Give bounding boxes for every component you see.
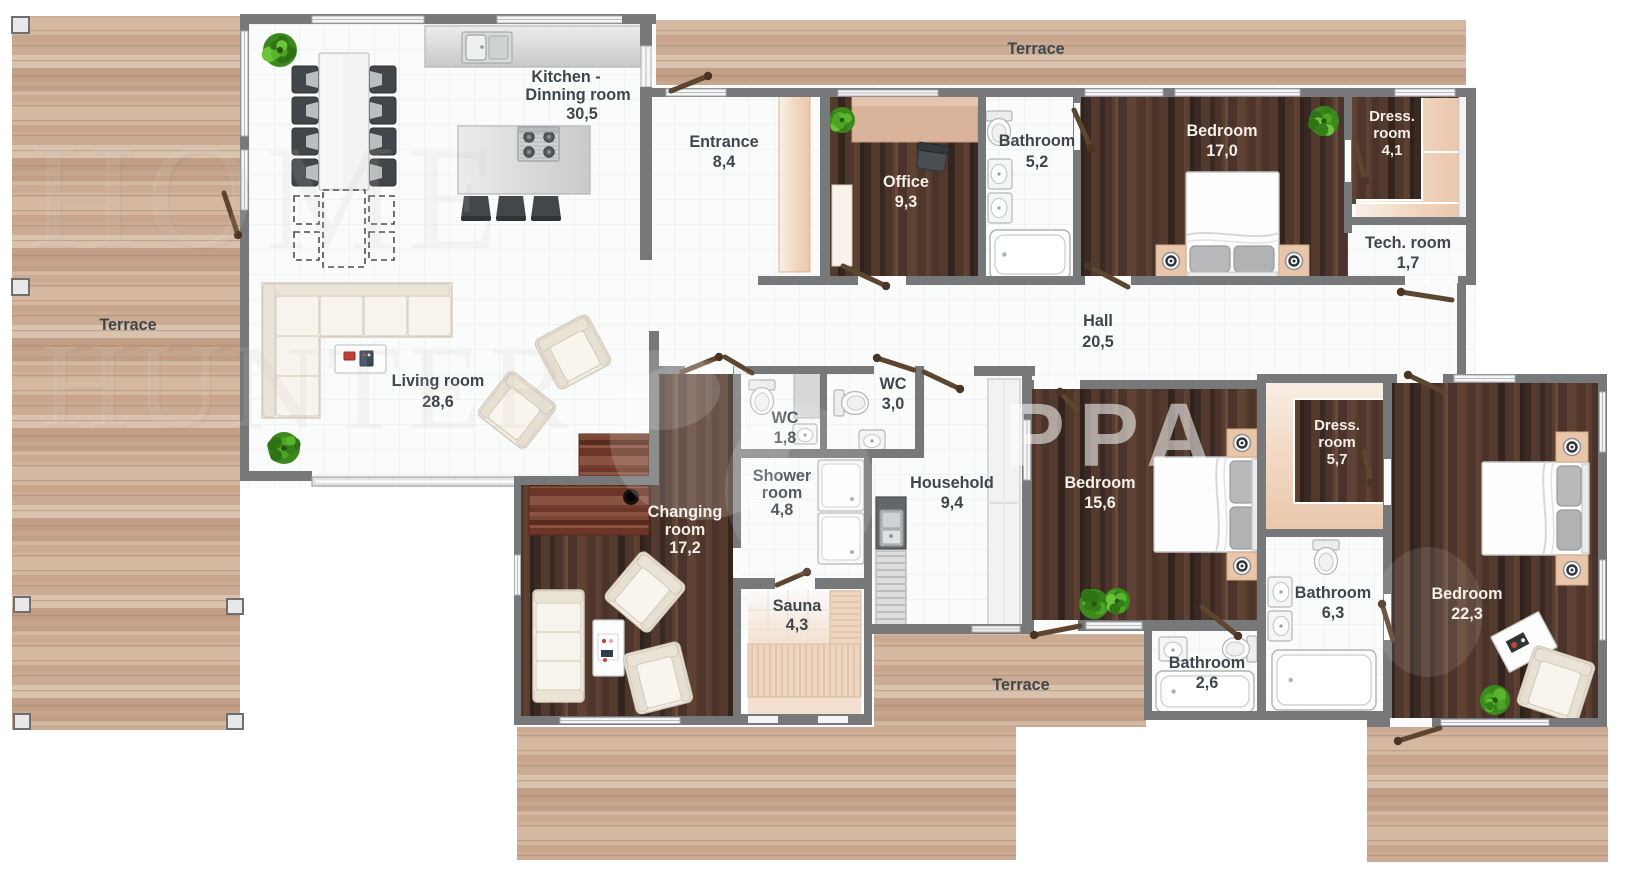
svg-text:Household: Household	[910, 474, 994, 492]
svg-text:9,3: 9,3	[895, 193, 918, 211]
svg-text:Dinning room: Dinning room	[525, 86, 630, 104]
svg-text:4,1: 4,1	[1382, 142, 1403, 159]
svg-text:15,6: 15,6	[1084, 494, 1116, 512]
svg-text:Dress.: Dress.	[1314, 417, 1360, 434]
svg-text:Dress.: Dress.	[1369, 108, 1415, 125]
svg-text:Bathroom: Bathroom	[999, 132, 1075, 150]
svg-text:3,0: 3,0	[882, 395, 905, 413]
svg-text:9,4: 9,4	[941, 494, 964, 512]
svg-text:20,5: 20,5	[1082, 333, 1114, 351]
svg-text:Bathroom: Bathroom	[1169, 654, 1245, 672]
svg-text:5,7: 5,7	[1327, 451, 1348, 468]
svg-text:Hall: Hall	[1083, 312, 1113, 330]
svg-text:room: room	[1373, 125, 1411, 142]
svg-text:WC: WC	[880, 375, 907, 393]
svg-text:Bedroom: Bedroom	[1186, 122, 1257, 140]
svg-text:Kitchen -: Kitchen -	[531, 68, 600, 86]
svg-text:5,2: 5,2	[1026, 153, 1049, 171]
svg-text:4,3: 4,3	[786, 616, 809, 634]
svg-text:2,6: 2,6	[1196, 674, 1219, 692]
svg-text:Sauna: Sauna	[773, 597, 823, 615]
svg-text:17,0: 17,0	[1206, 142, 1238, 160]
svg-text:Entrance: Entrance	[689, 133, 758, 151]
svg-text:Bathroom: Bathroom	[1295, 584, 1371, 602]
svg-text:PPA: PPA	[1005, 386, 1225, 486]
svg-text:1,7: 1,7	[1397, 254, 1420, 272]
svg-text:30,5: 30,5	[566, 105, 598, 123]
svg-text:HUNTER: HUNTER	[41, 319, 576, 452]
svg-text:Terrace: Terrace	[992, 676, 1049, 694]
svg-text:Office: Office	[883, 173, 929, 191]
svg-text:room: room	[1318, 434, 1356, 451]
svg-text:8,4: 8,4	[713, 153, 736, 171]
svg-text:Tech. room: Tech. room	[1365, 234, 1451, 252]
svg-text:6,3: 6,3	[1322, 604, 1345, 622]
svg-text:room: room	[665, 521, 705, 539]
svg-text:Terrace: Terrace	[1007, 40, 1064, 58]
svg-text:HOME: HOME	[30, 115, 506, 279]
svg-text:17,2: 17,2	[669, 539, 701, 557]
